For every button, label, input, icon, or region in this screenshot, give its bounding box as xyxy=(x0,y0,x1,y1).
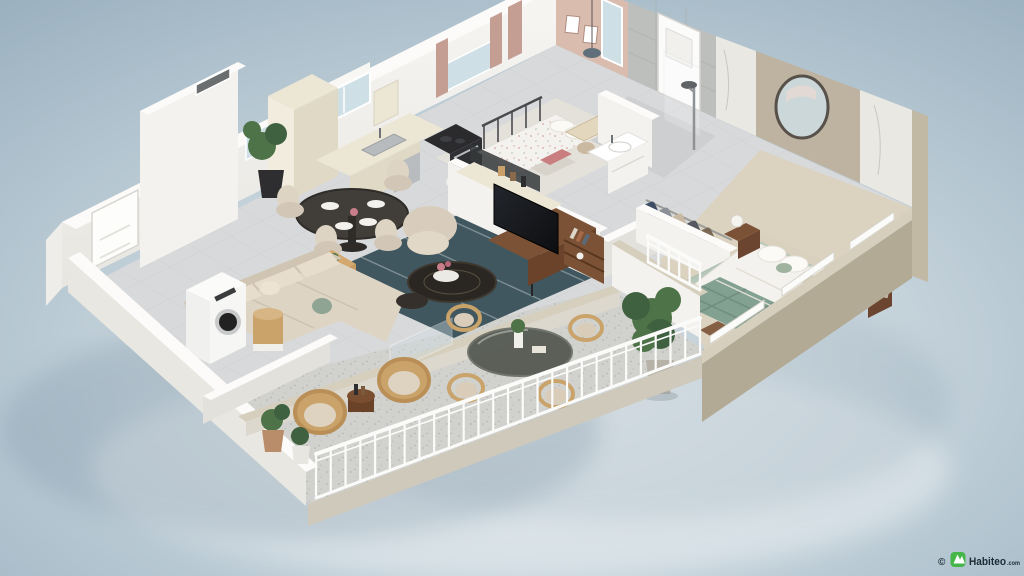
centerpiece xyxy=(350,208,358,216)
bottle xyxy=(354,384,358,395)
wicker-armchair xyxy=(379,359,429,401)
jar xyxy=(498,166,505,176)
ne-wall-end-cap xyxy=(912,110,928,282)
plate xyxy=(359,218,377,226)
accent-pillow xyxy=(776,263,792,273)
curtain-far xyxy=(508,0,522,60)
flowers xyxy=(437,263,445,271)
plate xyxy=(335,222,353,230)
sage-pillow xyxy=(312,298,332,314)
jar xyxy=(510,172,516,181)
curtain-left xyxy=(436,38,448,98)
plant-pot xyxy=(292,446,310,464)
washbasin xyxy=(609,142,631,152)
plant-pot xyxy=(262,430,284,452)
pendant-lamp xyxy=(583,48,601,58)
brand-tld: .com xyxy=(1007,560,1020,567)
round-mirror xyxy=(776,76,828,138)
vase-plant xyxy=(511,319,525,333)
shower-head xyxy=(681,81,697,89)
side-table xyxy=(396,293,428,309)
laundry-basket xyxy=(253,308,283,351)
brand-name: Habiteo xyxy=(969,556,1006,568)
deco-ball xyxy=(577,253,584,260)
plate xyxy=(367,200,385,208)
bottle xyxy=(521,176,526,187)
wall-frame-2 xyxy=(583,25,598,43)
table-deco xyxy=(532,346,546,353)
bottle xyxy=(361,386,365,395)
bedroom1-ne-window xyxy=(602,0,622,66)
plate xyxy=(321,202,339,210)
wicker-armchair xyxy=(295,391,345,433)
copyright-symbol: © xyxy=(938,557,946,568)
cream-pillow xyxy=(260,281,280,295)
curtain-right xyxy=(490,12,502,69)
washing-machine xyxy=(186,272,246,364)
vase xyxy=(514,332,523,348)
table-lamp xyxy=(731,215,743,227)
floorplan-render: © Habiteo .com xyxy=(0,0,1024,576)
tray xyxy=(433,270,459,282)
wall-frame-1 xyxy=(565,15,580,33)
